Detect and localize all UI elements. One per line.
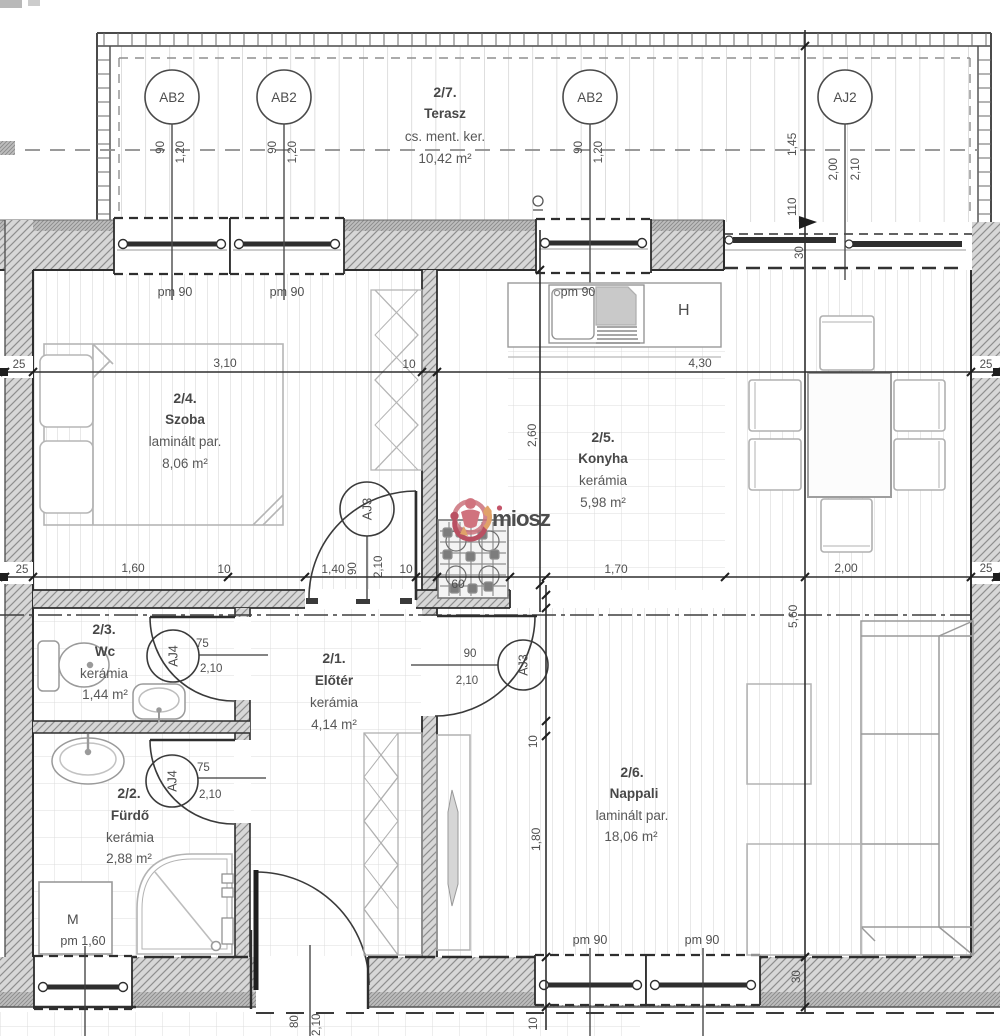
svg-text:kerámia: kerámia — [310, 695, 359, 710]
svg-text:10: 10 — [528, 735, 540, 748]
svg-text:pm 90: pm 90 — [561, 285, 596, 299]
svg-text:Terasz: Terasz — [424, 106, 466, 121]
svg-text:Szoba: Szoba — [165, 412, 205, 427]
svg-text:1,40: 1,40 — [321, 562, 345, 576]
svg-text:Előtér: Előtér — [315, 673, 354, 688]
svg-text:AJ3: AJ3 — [360, 498, 375, 520]
svg-text:1,44 m²: 1,44 m² — [82, 687, 128, 702]
svg-text:30: 30 — [794, 246, 806, 259]
svg-text:90: 90 — [464, 648, 477, 660]
svg-text:AJ3: AJ3 — [517, 654, 531, 676]
svg-text:1,70: 1,70 — [604, 562, 628, 576]
svg-text:2,00: 2,00 — [834, 561, 858, 575]
svg-text:3,10: 3,10 — [213, 356, 237, 370]
svg-text:2,10: 2,10 — [373, 556, 385, 578]
svg-text:75: 75 — [197, 762, 210, 774]
svg-text:10: 10 — [399, 562, 413, 576]
svg-text:AB2: AB2 — [577, 90, 603, 105]
svg-text:kerámia: kerámia — [579, 473, 628, 488]
svg-text:10: 10 — [528, 1017, 540, 1030]
svg-text:10: 10 — [217, 562, 231, 576]
svg-text:1,20: 1,20 — [287, 141, 299, 163]
svg-text:2,88 m²: 2,88 m² — [106, 851, 152, 866]
svg-text:pm 90: pm 90 — [685, 933, 720, 947]
svg-text:pm 90: pm 90 — [158, 285, 193, 299]
svg-text:2/4.: 2/4. — [173, 390, 196, 406]
svg-text:AJ4: AJ4 — [166, 770, 180, 792]
svg-text:5,60: 5,60 — [786, 604, 800, 628]
svg-text:75: 75 — [196, 638, 209, 650]
svg-text:1,20: 1,20 — [175, 141, 187, 163]
svg-text:2,10: 2,10 — [850, 158, 862, 180]
svg-text:2,10: 2,10 — [199, 789, 221, 801]
svg-text:30: 30 — [791, 970, 803, 983]
svg-text:2/3.: 2/3. — [92, 621, 115, 637]
svg-text:5,98 m²: 5,98 m² — [580, 495, 626, 510]
svg-text:10,42 m²: 10,42 m² — [418, 151, 472, 166]
svg-text:90: 90 — [155, 141, 167, 154]
svg-text:H: H — [678, 302, 690, 319]
svg-text:10: 10 — [402, 357, 416, 371]
svg-text:25: 25 — [13, 359, 26, 371]
svg-text:25: 25 — [980, 359, 993, 371]
svg-text:110: 110 — [787, 198, 799, 216]
svg-text:1,45: 1,45 — [785, 132, 799, 156]
svg-text:pm 90: pm 90 — [270, 285, 305, 299]
svg-text:2/7.: 2/7. — [433, 84, 456, 100]
svg-text:4,14 m²: 4,14 m² — [311, 717, 357, 732]
svg-text:80: 80 — [289, 1015, 301, 1028]
svg-text:25: 25 — [16, 564, 29, 576]
svg-text:M: M — [67, 911, 79, 927]
svg-text:1,60: 1,60 — [121, 561, 145, 575]
svg-text:Wc: Wc — [95, 644, 116, 659]
svg-text:2,10: 2,10 — [200, 663, 222, 675]
svg-text:laminált par.: laminált par. — [149, 434, 222, 449]
svg-text:2,10: 2,10 — [311, 1014, 323, 1036]
svg-text:laminált par.: laminált par. — [596, 808, 669, 823]
svg-text:60: 60 — [451, 577, 465, 591]
svg-text:1,20: 1,20 — [593, 141, 605, 163]
svg-text:cs. ment. ker.: cs. ment. ker. — [405, 129, 485, 144]
svg-text:90: 90 — [347, 562, 359, 575]
svg-text:90: 90 — [573, 141, 585, 154]
svg-text:2,60: 2,60 — [525, 423, 539, 447]
svg-text:18,06 m²: 18,06 m² — [604, 829, 658, 844]
svg-text:8,06 m²: 8,06 m² — [162, 456, 208, 471]
svg-text:Nappali: Nappali — [610, 786, 659, 801]
svg-text:1,80: 1,80 — [529, 827, 543, 851]
svg-text:90: 90 — [267, 141, 279, 154]
svg-text:Fürdő: Fürdő — [111, 808, 149, 823]
svg-text:25: 25 — [980, 563, 993, 575]
svg-text:kerámia: kerámia — [80, 666, 129, 681]
svg-text:2/2.: 2/2. — [117, 785, 140, 801]
svg-text:AB2: AB2 — [159, 90, 185, 105]
svg-text:2/1.: 2/1. — [322, 650, 345, 666]
svg-text:AJ2: AJ2 — [833, 90, 856, 105]
svg-text:kerámia: kerámia — [106, 830, 155, 845]
svg-text:AJ4: AJ4 — [167, 645, 181, 667]
svg-text:2,10: 2,10 — [456, 675, 478, 687]
svg-text:2,00: 2,00 — [828, 158, 840, 180]
svg-text:2/6.: 2/6. — [620, 764, 643, 780]
svg-text:4,30: 4,30 — [688, 356, 712, 370]
svg-text:pm 90: pm 90 — [573, 933, 608, 947]
svg-text:AB2: AB2 — [271, 90, 297, 105]
svg-text:2/5.: 2/5. — [591, 429, 614, 445]
svg-text:Konyha: Konyha — [578, 451, 628, 466]
svg-text:pm 1,60: pm 1,60 — [60, 934, 105, 948]
